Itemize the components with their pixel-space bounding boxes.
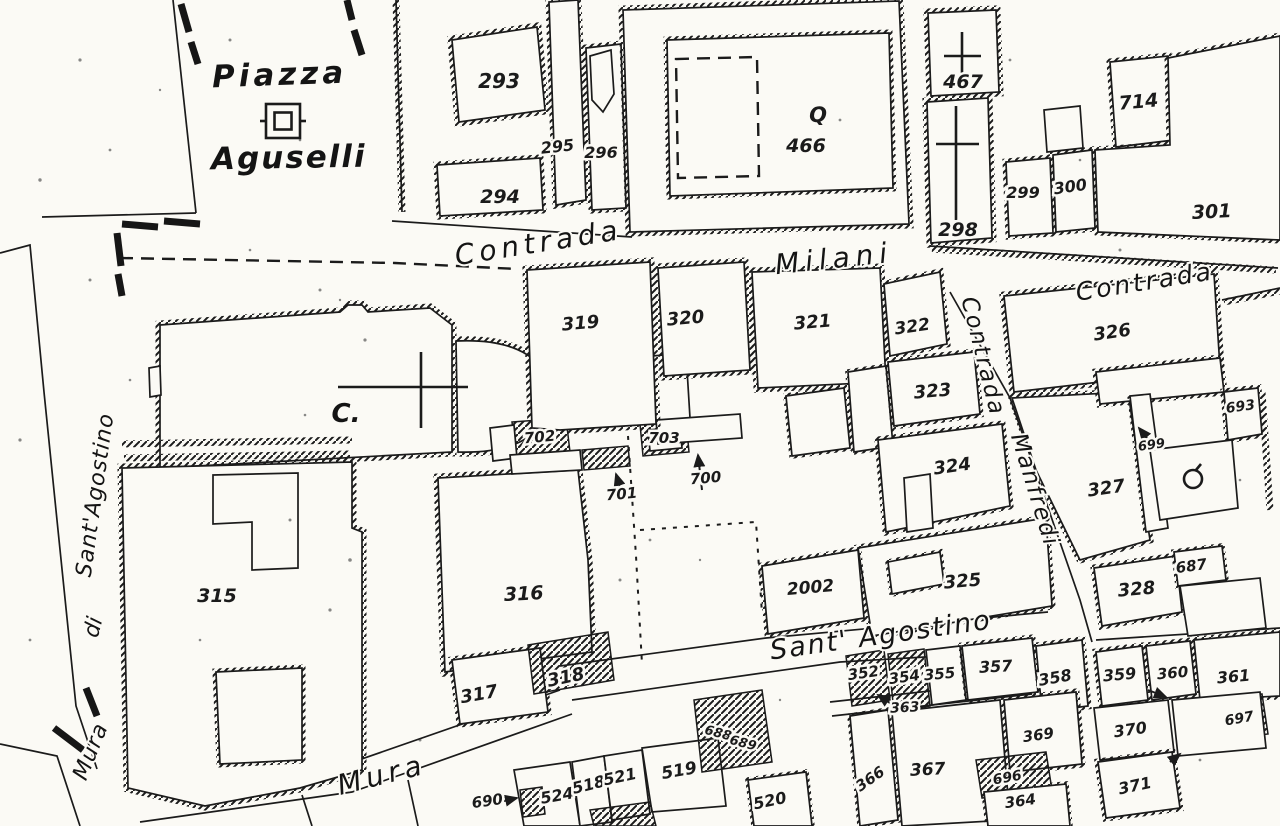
parcel-label-367: 367 xyxy=(909,759,946,781)
parcel-label-296: 296 xyxy=(584,143,617,162)
parcel-label-467: 467 xyxy=(942,71,983,93)
block-366-369 xyxy=(850,692,1082,826)
parcel-label-316: 316 xyxy=(503,582,544,606)
cadastral-map-screenshot: Q 29329529629446646729829930071430131932… xyxy=(0,0,1280,826)
parcel-label-2002: 2002 xyxy=(786,576,835,600)
parcel-label-700: 700 xyxy=(689,468,722,489)
parcel-label-320: 320 xyxy=(666,306,705,330)
parcel-label-294: 294 xyxy=(480,186,520,208)
parcel-label-701: 701 xyxy=(605,484,638,505)
parcel-label-319: 319 xyxy=(561,311,600,335)
parcel-label-363: 363 xyxy=(890,699,920,717)
place-label-church-initial: C. xyxy=(332,399,361,429)
parcel-label-361: 361 xyxy=(1216,666,1251,688)
parcel-label-299: 299 xyxy=(1006,183,1039,202)
parcel-label-321: 321 xyxy=(793,310,832,334)
parcel-label-293: 293 xyxy=(478,69,520,93)
parcel-label-466: 466 xyxy=(785,135,826,157)
parcel-label-702: 702 xyxy=(523,427,556,448)
map-canvas: Q 29329529629446646729829930071430131932… xyxy=(0,0,1280,826)
q-building-mark-icon: Q xyxy=(809,103,827,127)
block-466 xyxy=(623,1,909,232)
place-label-aguselli: Aguselli xyxy=(208,139,367,178)
parcel-label-325: 325 xyxy=(943,569,982,593)
block-315 xyxy=(122,462,362,806)
parcel-label-315: 315 xyxy=(197,585,237,607)
parcel-label-714: 714 xyxy=(1118,89,1159,114)
parcel-label-328: 328 xyxy=(1117,577,1156,601)
parcel-label-359: 359 xyxy=(1102,664,1137,686)
parcel-label-298: 298 xyxy=(938,219,978,241)
parcel-label-323: 323 xyxy=(913,379,952,403)
parcel-label-295: 295 xyxy=(540,135,575,157)
parcel-label-357: 357 xyxy=(979,656,1014,677)
parcel-label-360: 360 xyxy=(1156,663,1189,684)
parcel-label-301: 301 xyxy=(1191,200,1232,224)
place-label-piazza: Piazza xyxy=(211,55,347,96)
parcel-label-355: 355 xyxy=(923,664,956,685)
parcel-label-703: 703 xyxy=(648,429,679,447)
